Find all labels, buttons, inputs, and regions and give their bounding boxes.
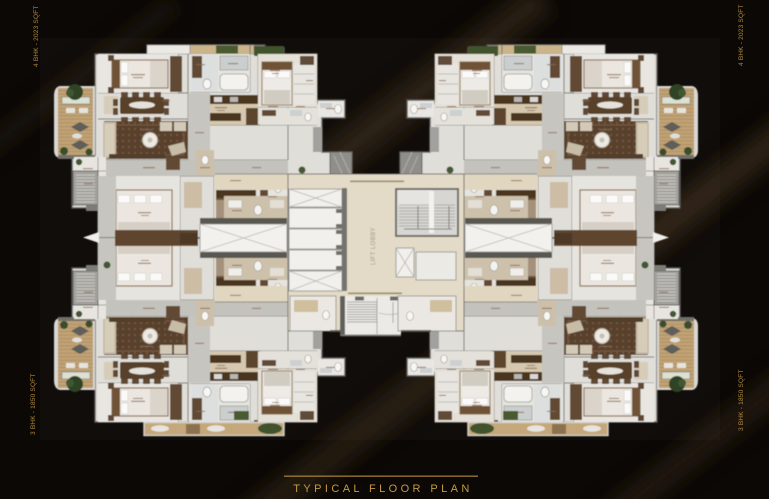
svg-text:4 BHK - 2023 SQFT: 4 BHK - 2023 SQFT [738, 4, 745, 66]
svg-text:3 BHK - 1850 SQFT: 3 BHK - 1850 SQFT [738, 369, 745, 431]
svg-text:4 BHK - 2023 SQFT: 4 BHK - 2023 SQFT [33, 5, 40, 67]
svg-text:TYPICAL FLOOR PLAN: TYPICAL FLOOR PLAN [293, 483, 472, 495]
svg-text:3 BHK - 1850 SQFT: 3 BHK - 1850 SQFT [30, 373, 37, 435]
